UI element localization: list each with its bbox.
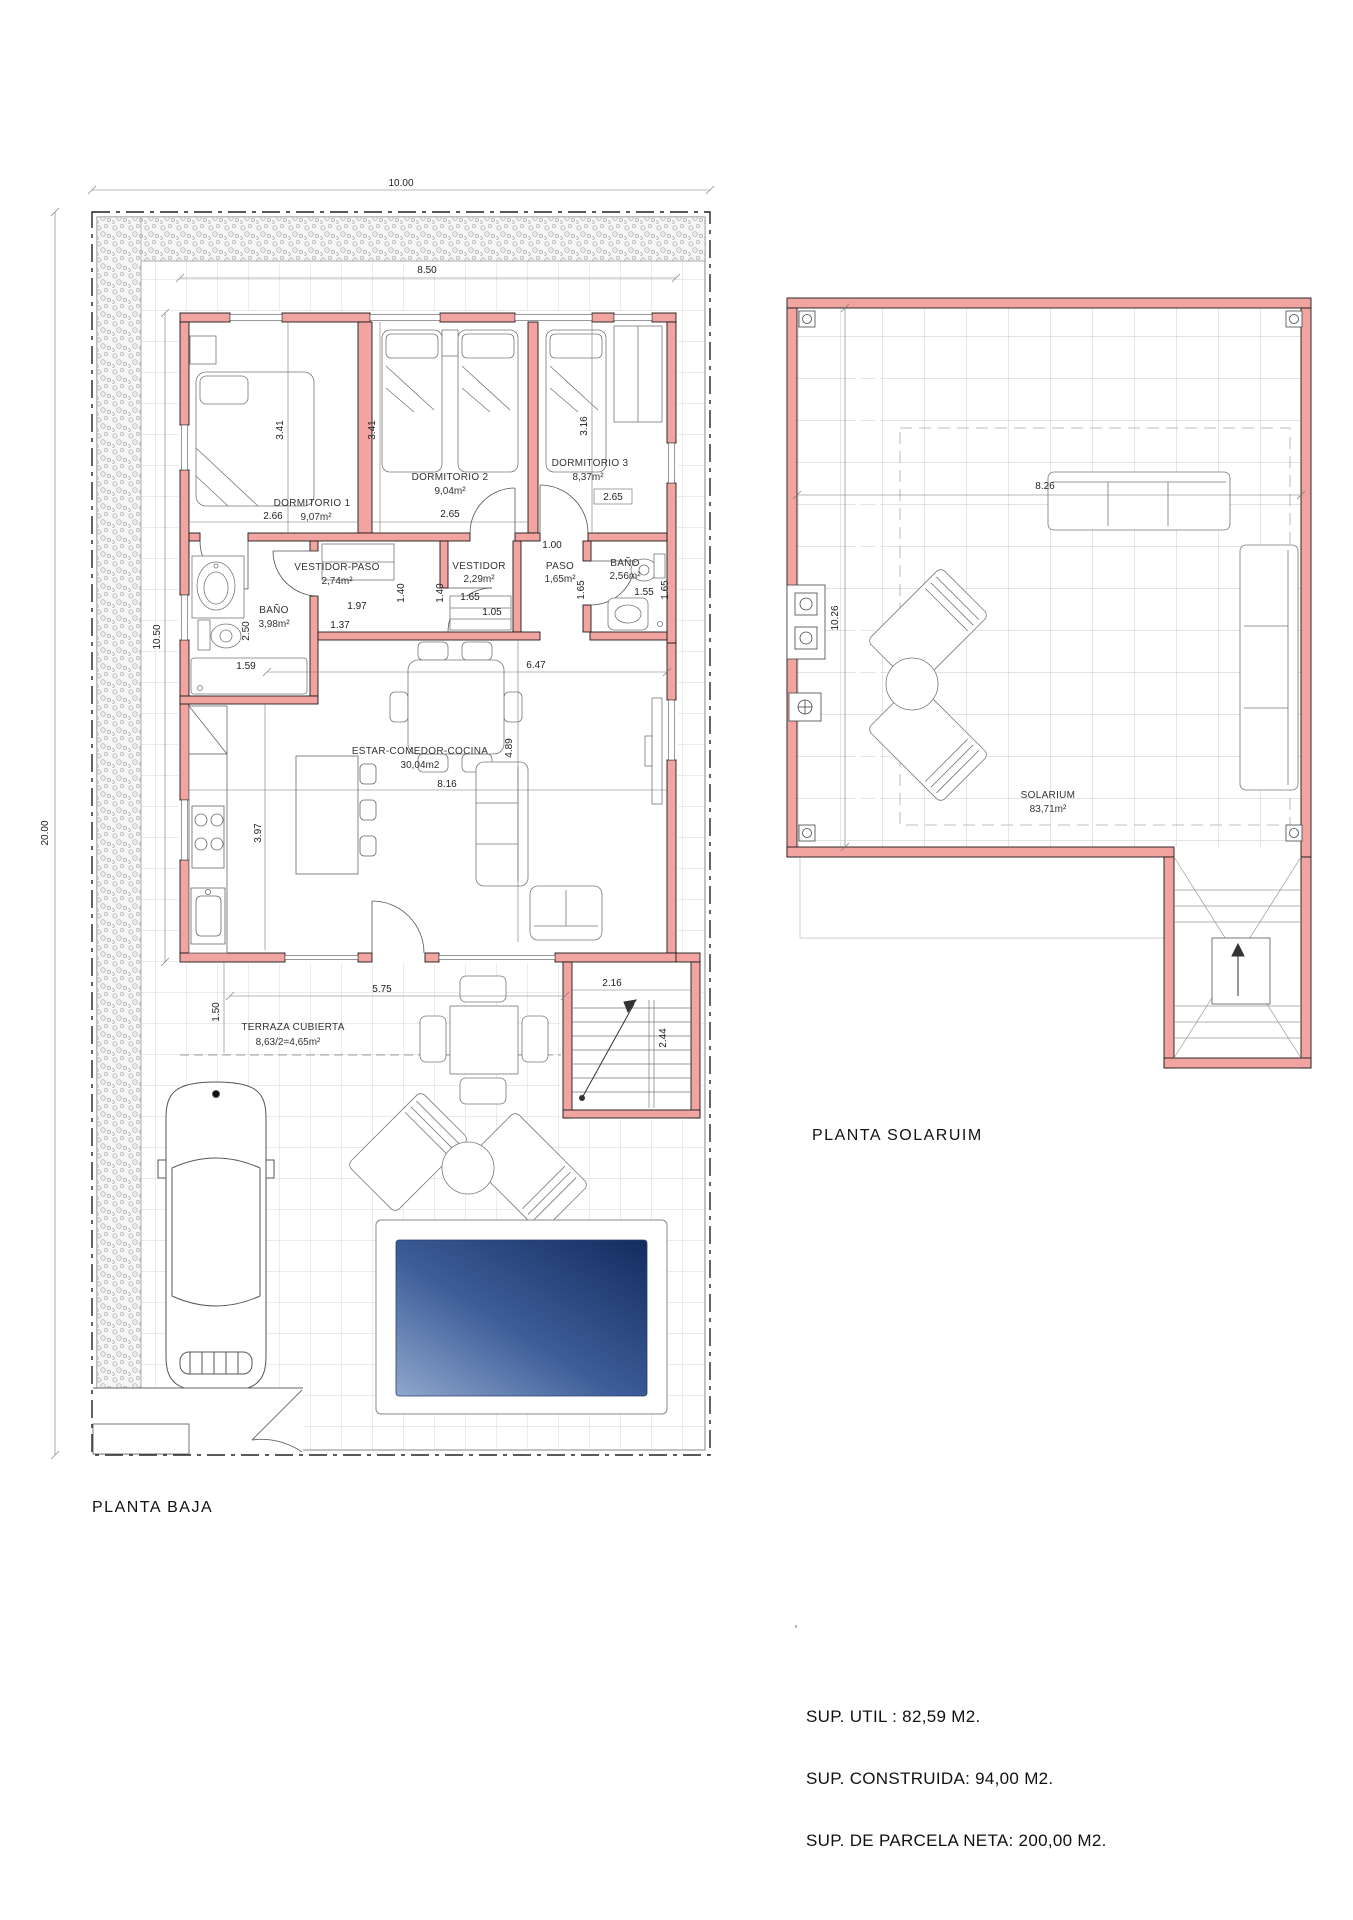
- planta-baja-plan: 10.00 20.00 8.50 10.50 3.41 3.41 3.16 2.…: [40, 178, 714, 1516]
- room-area-dormitorio-2: 9,04m²: [434, 486, 466, 497]
- surface-summary: ‘ SUP. UTIL : 82,59 M2. SUP. CONSTRUIDA:…: [795, 1624, 1107, 1850]
- dim-solarium-h: 10.26: [830, 605, 841, 630]
- dim-stairs-w: 2.16: [602, 978, 622, 989]
- dim-bano1-h: 2.50: [241, 621, 252, 641]
- dim-terraza-w: 5.75: [372, 984, 392, 995]
- stray-mark: ‘: [795, 1624, 797, 1635]
- dim-parcel-width: 10.00: [388, 178, 413, 189]
- dim-vp-a: 1.97: [347, 601, 367, 612]
- dim-dorm1-depth: 3.41: [275, 420, 286, 440]
- room-area-bano-1: 3,98m²: [258, 619, 290, 630]
- room-label-estar: ESTAR-COMEDOR-COCINA: [352, 746, 488, 757]
- planta-solarium-plan: 8.26 10.26 SOLARIUM 83,71m² PLANTA SOLAR…: [783, 294, 1315, 1144]
- dim-house-height: 10.50: [152, 624, 163, 649]
- room-label-terraza: TERRAZA CUBIERTA: [241, 1022, 344, 1033]
- driveway-gate: [93, 1388, 303, 1454]
- plan-title-planta-solarium: PLANTA SOLARUIM: [812, 1127, 983, 1144]
- pool: [376, 1220, 667, 1414]
- dim-vp-h: 1.40: [396, 583, 407, 603]
- room-area-vestidor-paso: 2,74m²: [321, 576, 353, 587]
- dim-vestidor-b: 1.05: [482, 607, 502, 618]
- dim-solarium-w: 8.26: [1035, 481, 1055, 492]
- room-label-bano-2: BAÑO: [610, 556, 640, 569]
- dim-hall: 6.47: [526, 660, 546, 671]
- room-label-solarium: SOLARIUM: [1021, 790, 1076, 801]
- dim-parcel-height: 20.00: [40, 820, 51, 845]
- dim-dorm2-depth: 3.41: [367, 420, 378, 440]
- room-area-estar: 30,04m2: [401, 760, 440, 771]
- dim-vestidor-a: 1.65: [460, 592, 480, 603]
- dim-bano2-h: 1.65: [660, 580, 671, 600]
- summary-sup-util: SUP. UTIL : 82,59 M2.: [806, 1707, 981, 1726]
- solarium-tiles: [797, 308, 1301, 847]
- dim-dorm3-width: 2.65: [603, 492, 623, 503]
- dim-terraza-h: 1.50: [211, 1002, 222, 1022]
- dim-bano1-w: 1.59: [236, 661, 256, 672]
- car: [158, 1082, 274, 1392]
- room-label-vestidor: VESTIDOR: [452, 561, 506, 572]
- dim-dorm3-depth: 3.16: [579, 416, 590, 436]
- plan-title-planta-baja: PLANTA BAJA: [92, 1499, 213, 1516]
- room-label-dormitorio-2: DORMITORIO 2: [412, 472, 489, 483]
- room-label-dormitorio-3: DORMITORIO 3: [552, 458, 629, 469]
- room-area-terraza: 8,63/2=4,65m²: [256, 1037, 321, 1048]
- summary-sup-construida: SUP. CONSTRUIDA: 94,00 M2.: [806, 1769, 1053, 1788]
- room-area-vestidor: 2,29m²: [463, 574, 495, 585]
- room-label-paso: PASO: [546, 561, 574, 572]
- room-area-dormitorio-3: 8,37m²: [572, 472, 604, 483]
- dim-vestidor-h: 1.40: [435, 583, 446, 603]
- plan-sheet: 10.00 20.00 8.50 10.50 3.41 3.41 3.16 2.…: [0, 0, 1353, 1920]
- dim-stairs-h: 2.44: [658, 1028, 669, 1048]
- dim-living-h: 3.97: [253, 823, 264, 843]
- room-area-dormitorio-1: 9,07m²: [300, 512, 332, 523]
- dim-bano2-w: 1.55: [634, 587, 654, 598]
- floorplan-drawing: 10.00 20.00 8.50 10.50 3.41 3.41 3.16 2.…: [0, 0, 1353, 1920]
- dim-living-w: 8.16: [437, 779, 457, 790]
- dim-house-width: 8.50: [417, 265, 437, 276]
- dim-paso-top: 1.00: [542, 540, 562, 551]
- dim-vp-b: 1.37: [330, 620, 350, 631]
- room-area-paso: 1,65m²: [544, 574, 576, 585]
- dim-living-h2: 4.89: [504, 738, 515, 758]
- room-label-vestidor-paso: VESTIDOR-PASO: [294, 562, 379, 573]
- dim-dorm1-width: 2.66: [263, 511, 283, 522]
- summary-sup-parcela: SUP. DE PARCELA NETA: 200,00 M2.: [806, 1831, 1107, 1850]
- room-area-solarium: 83,71m²: [1030, 804, 1067, 815]
- dim-dorm2-width: 2.65: [440, 509, 460, 520]
- room-label-bano-1: BAÑO: [259, 603, 289, 616]
- dim-paso-h: 1.65: [576, 580, 587, 600]
- room-label-dormitorio-1: DORMITORIO 1: [274, 498, 351, 509]
- roof-outline: [800, 857, 1164, 938]
- room-area-bano-2: 2,56m²: [609, 571, 641, 582]
